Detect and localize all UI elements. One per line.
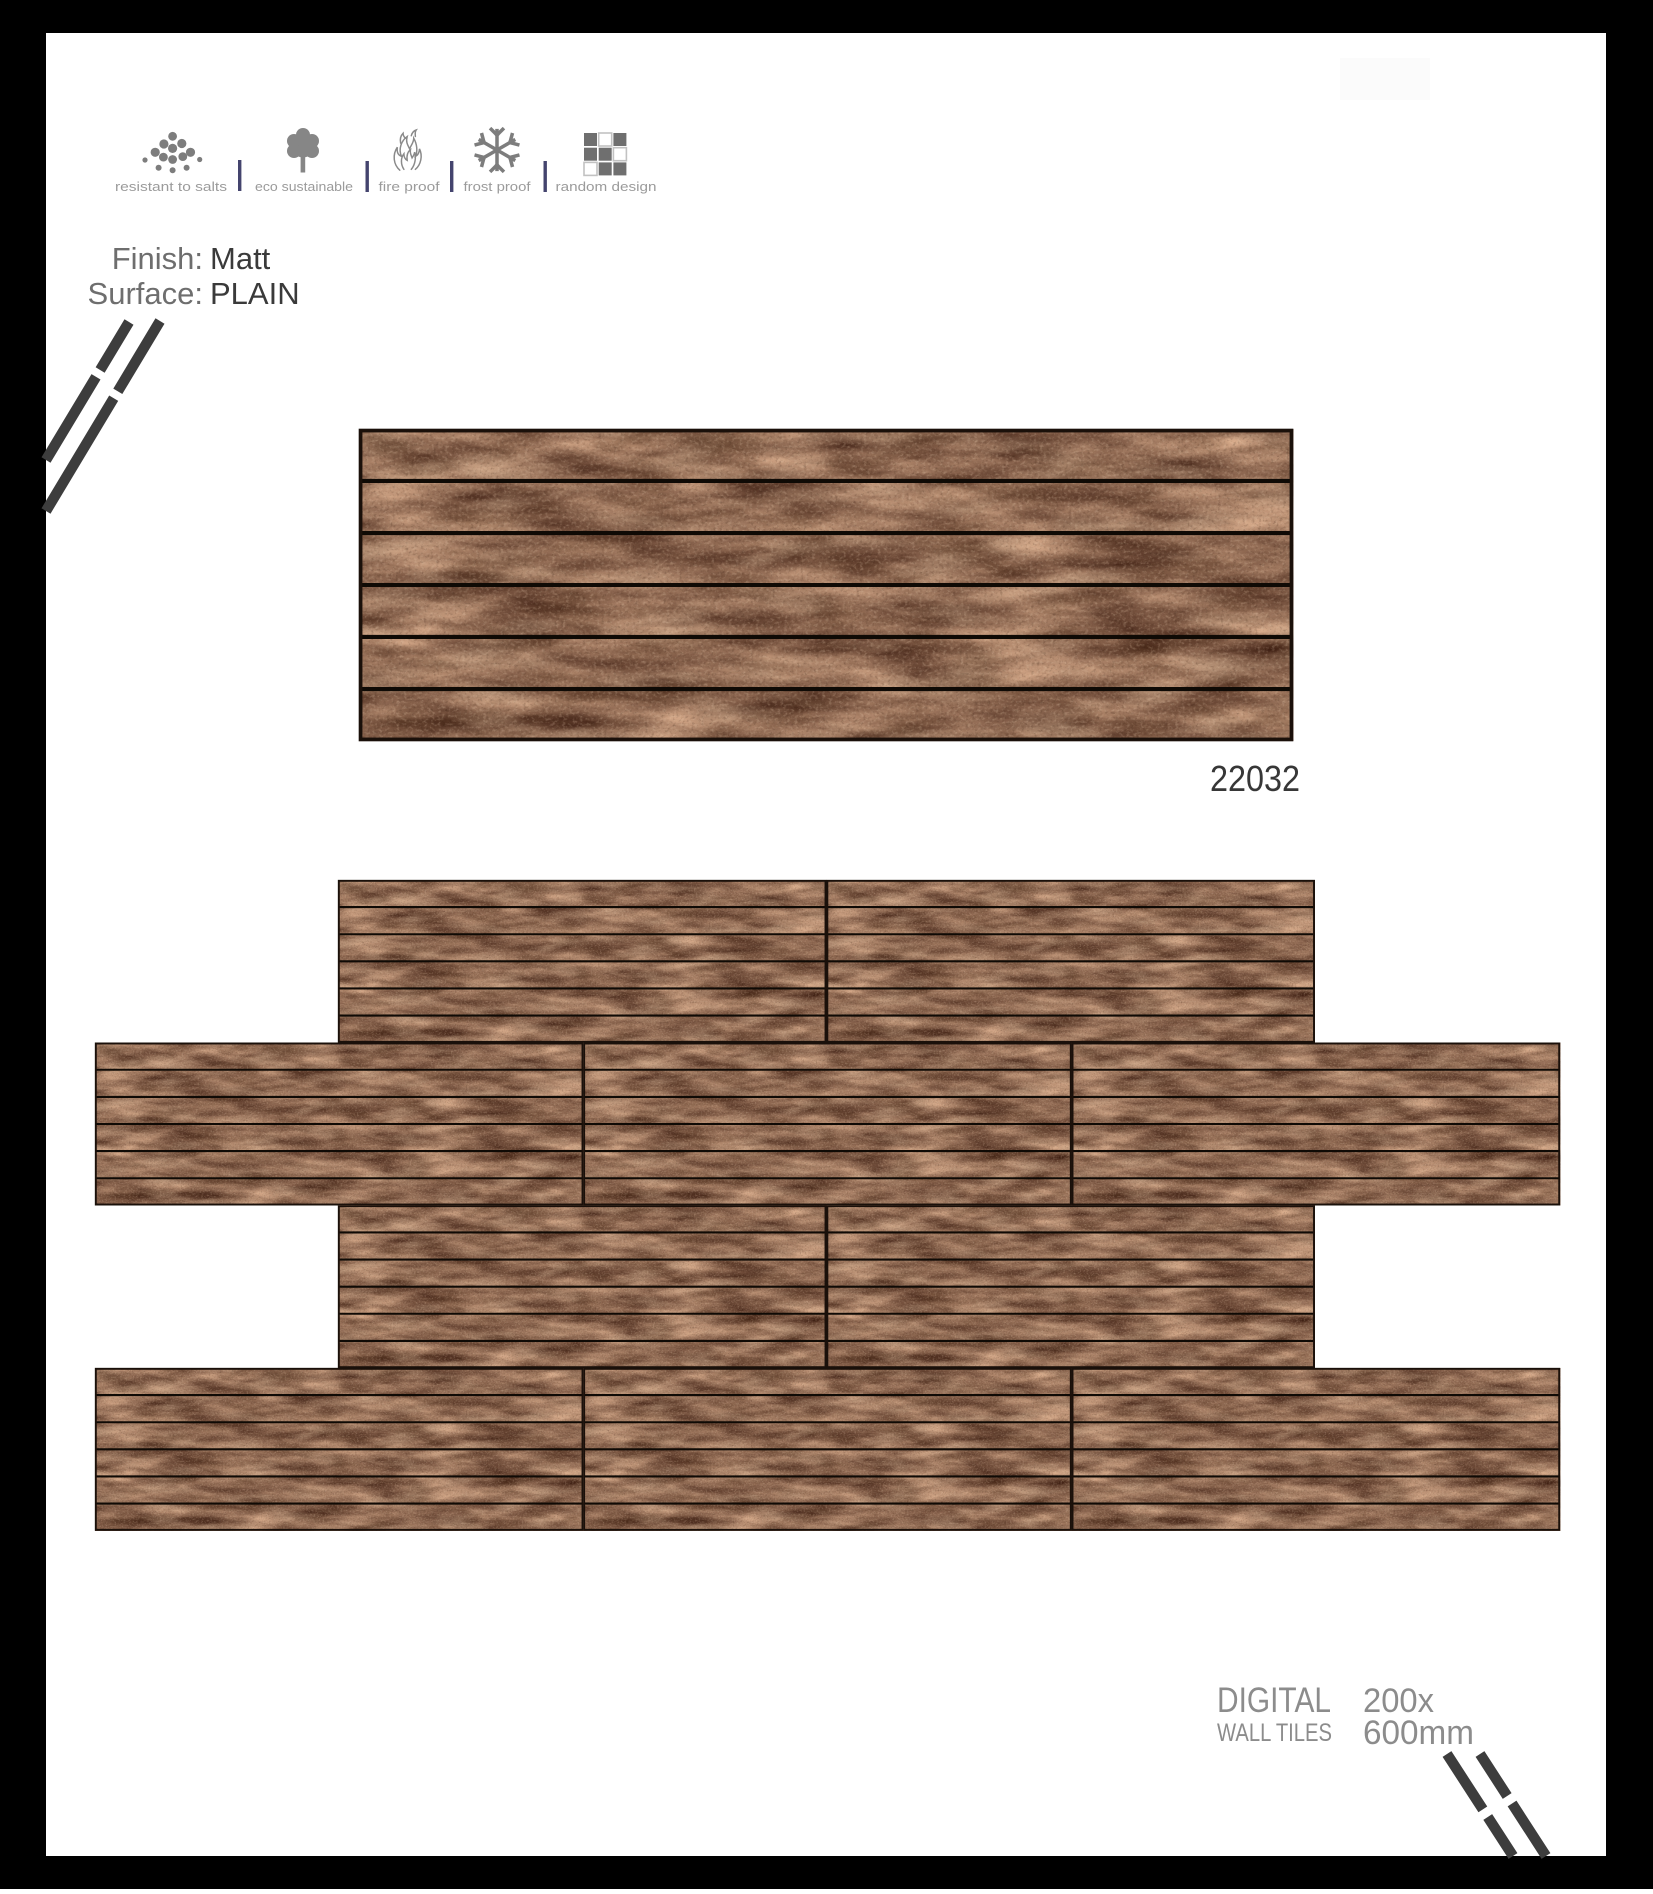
svg-text:WALL TILES: WALL TILES — [1217, 1719, 1332, 1747]
svg-text:PLAIN: PLAIN — [210, 276, 300, 311]
svg-text:fire proof: fire proof — [379, 179, 440, 194]
svg-text:22032: 22032 — [1210, 758, 1300, 799]
svg-text:resistant to salts: resistant to salts — [115, 179, 228, 194]
svg-text:eco sustainable: eco sustainable — [255, 179, 353, 194]
svg-text:DIGITAL: DIGITAL — [1217, 1681, 1331, 1720]
svg-text:600mm: 600mm — [1363, 1714, 1474, 1752]
svg-text:Surface:: Surface: — [88, 276, 203, 311]
svg-text:Finish:: Finish: — [112, 241, 203, 276]
svg-text:frost proof: frost proof — [464, 179, 531, 194]
svg-text:random design: random design — [556, 179, 657, 194]
svg-text:Matt: Matt — [210, 241, 271, 276]
